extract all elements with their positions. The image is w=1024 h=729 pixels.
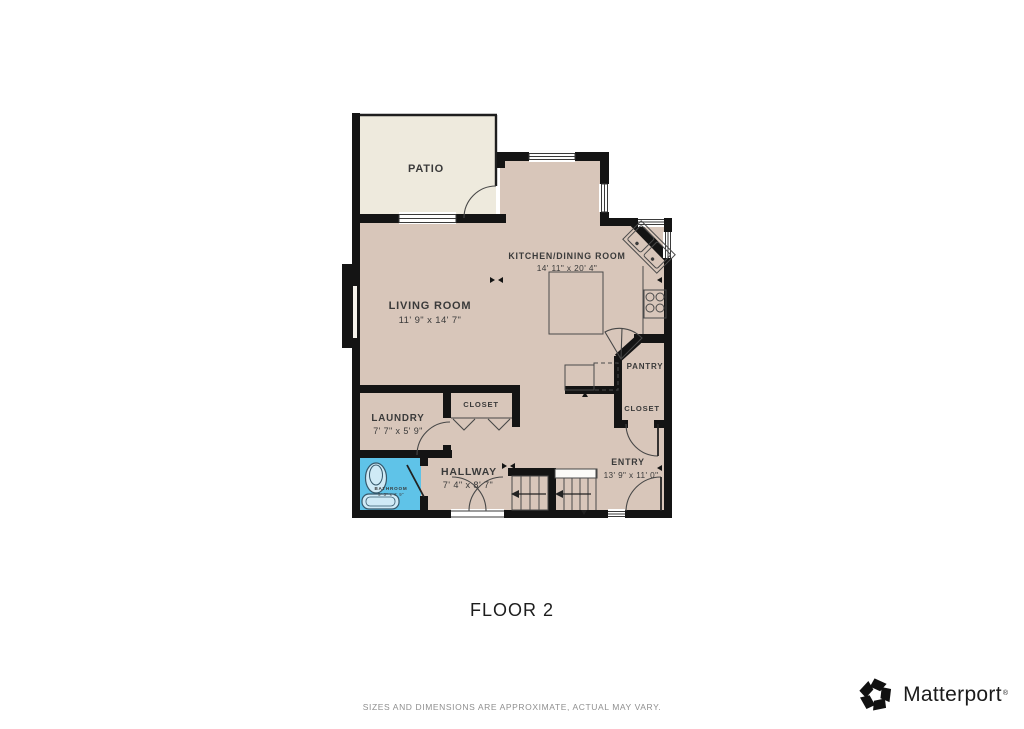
matterport-wordmark: Matterport <box>903 683 1002 706</box>
label-pantry: PANTRY <box>627 362 664 371</box>
dims-bathroom: 5' 3" x 4' 9" <box>378 492 404 497</box>
page: { "floor_label": "FLOOR 2", "disclaimer"… <box>0 0 1024 724</box>
wall-bathroom-top <box>352 450 452 458</box>
dims-entry: 13' 9" x 11' 0" <box>604 471 659 480</box>
wall-right <box>664 218 672 518</box>
label-entry: ENTRY <box>611 457 645 467</box>
window-right-wall <box>663 232 673 258</box>
label-patio: PATIO <box>408 163 444 175</box>
label-laundry: LAUNDRY <box>371 413 424 424</box>
stairs-landing <box>555 469 597 478</box>
matterport-logo: Matterport® <box>857 676 1008 714</box>
window-kitchen-top <box>529 151 575 162</box>
dims-kitchen-dining: 14' 11" x 20' 4" <box>537 263 598 273</box>
window-entry-sidelight <box>608 509 625 519</box>
dims-living-room: 11' 9" x 14' 7" <box>399 315 462 326</box>
wall-pantry-left <box>614 356 622 428</box>
wall-bathroom-right-bottom <box>420 496 428 512</box>
wall-stairs-top <box>508 468 555 476</box>
hallway-threshold <box>451 509 504 519</box>
wall-living-bottom <box>352 385 520 393</box>
label-bathroom: BATHROOM <box>374 486 407 491</box>
label-closet-hall: CLOSET <box>463 400 499 409</box>
dims-laundry: 7' 7" x 5' 9" <box>373 426 423 436</box>
wall-kitchen-top-stub <box>497 152 505 168</box>
wall-closet-right <box>512 385 520 427</box>
label-kitchen-dining: KITCHEN/DINING ROOM <box>508 251 625 261</box>
label-hallway: HALLWAY <box>441 466 497 478</box>
window-patio <box>399 212 456 224</box>
dims-hallway: 7' 4" x 8' 7" <box>443 480 493 490</box>
window-kitchen-right <box>599 184 610 212</box>
label-closet-entry: CLOSET <box>624 404 660 413</box>
registered-mark: ® <box>1003 690 1008 697</box>
matterport-logo-icon <box>857 676 894 714</box>
fireplace-bump <box>342 264 352 348</box>
wall-closet-entry-stub-right <box>654 420 664 428</box>
wall-laundry-right-top <box>443 393 451 418</box>
fireplace-slot <box>353 286 357 338</box>
wall-bathroom-right-top <box>420 450 428 466</box>
label-living-room: LIVING ROOM <box>389 300 472 312</box>
floor-title: FLOOR 2 <box>0 600 1024 621</box>
